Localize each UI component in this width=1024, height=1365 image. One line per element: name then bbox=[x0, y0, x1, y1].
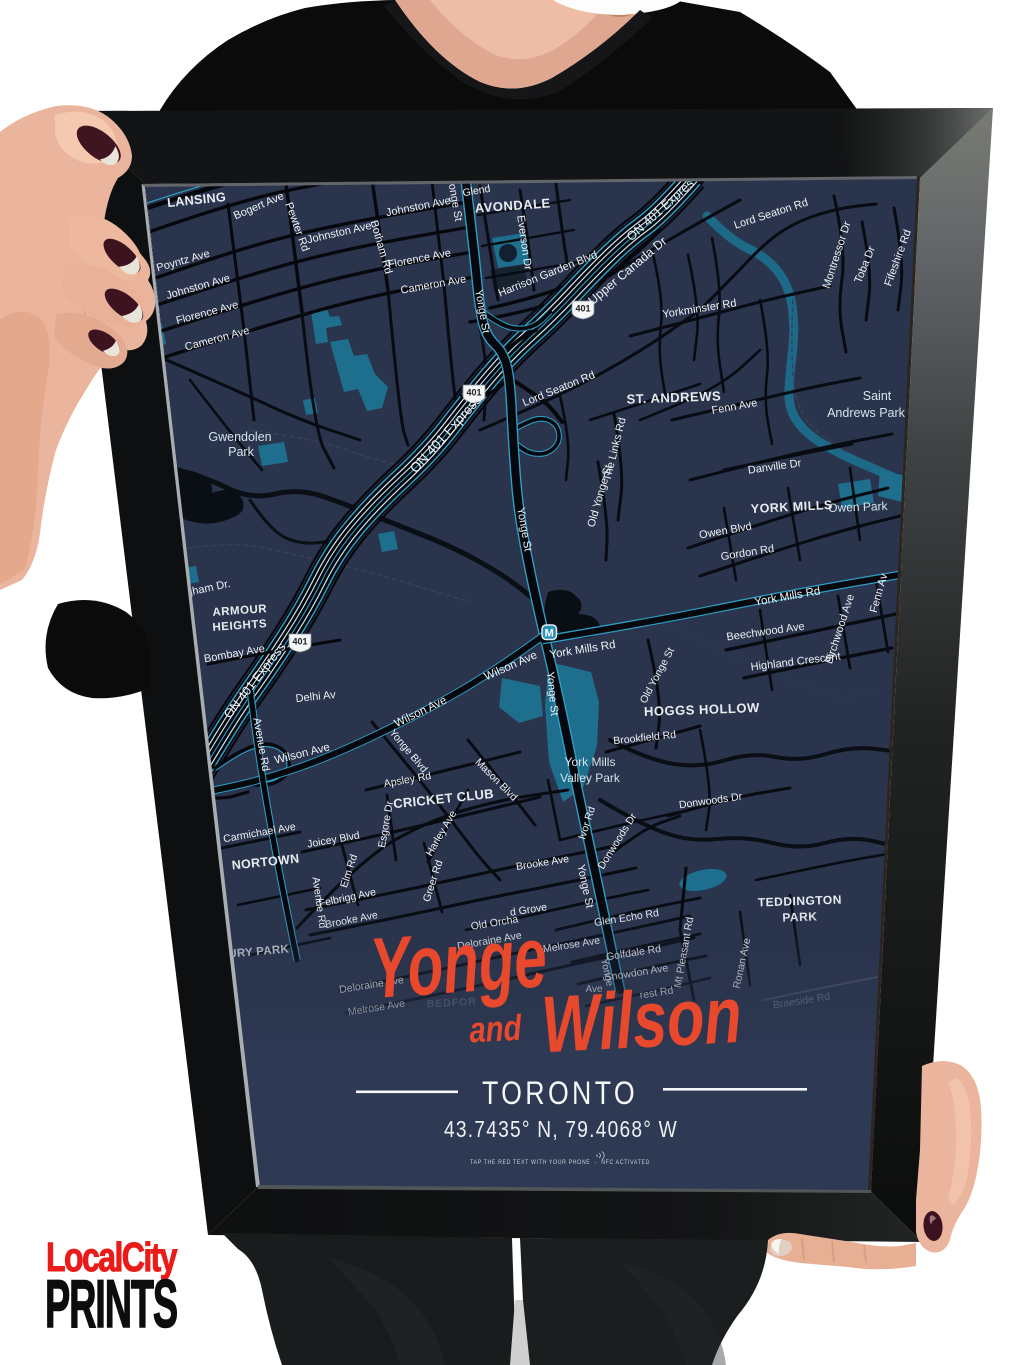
svg-text:Owen Park: Owen Park bbox=[828, 499, 889, 515]
svg-text:43.7435° N, 79.4068° W: 43.7435° N, 79.4068° W bbox=[444, 1116, 678, 1142]
svg-text:TORONTO: TORONTO bbox=[482, 1075, 638, 1111]
svg-text:401: 401 bbox=[575, 304, 590, 314]
svg-text:PRINTS: PRINTS bbox=[45, 1266, 177, 1342]
svg-text:Gwendolen: Gwendolen bbox=[208, 430, 271, 444]
svg-text:Andrews Park: Andrews Park bbox=[827, 406, 906, 420]
svg-text:M: M bbox=[545, 628, 554, 640]
svg-text:Wilson: Wilson bbox=[539, 970, 743, 1069]
svg-text:Valley Park: Valley Park bbox=[560, 771, 621, 785]
svg-text:TAP THE RED TEXT WITH YOUR PHO: TAP THE RED TEXT WITH YOUR PHONE - NFC A… bbox=[470, 1159, 650, 1166]
svg-text:Park: Park bbox=[228, 445, 254, 459]
svg-text:and: and bbox=[468, 1007, 523, 1051]
svg-text:York Mills: York Mills bbox=[565, 755, 616, 769]
svg-text:401: 401 bbox=[292, 637, 307, 647]
svg-text:Saint: Saint bbox=[863, 389, 892, 403]
svg-text:Yonge: Yonge bbox=[367, 909, 549, 1017]
